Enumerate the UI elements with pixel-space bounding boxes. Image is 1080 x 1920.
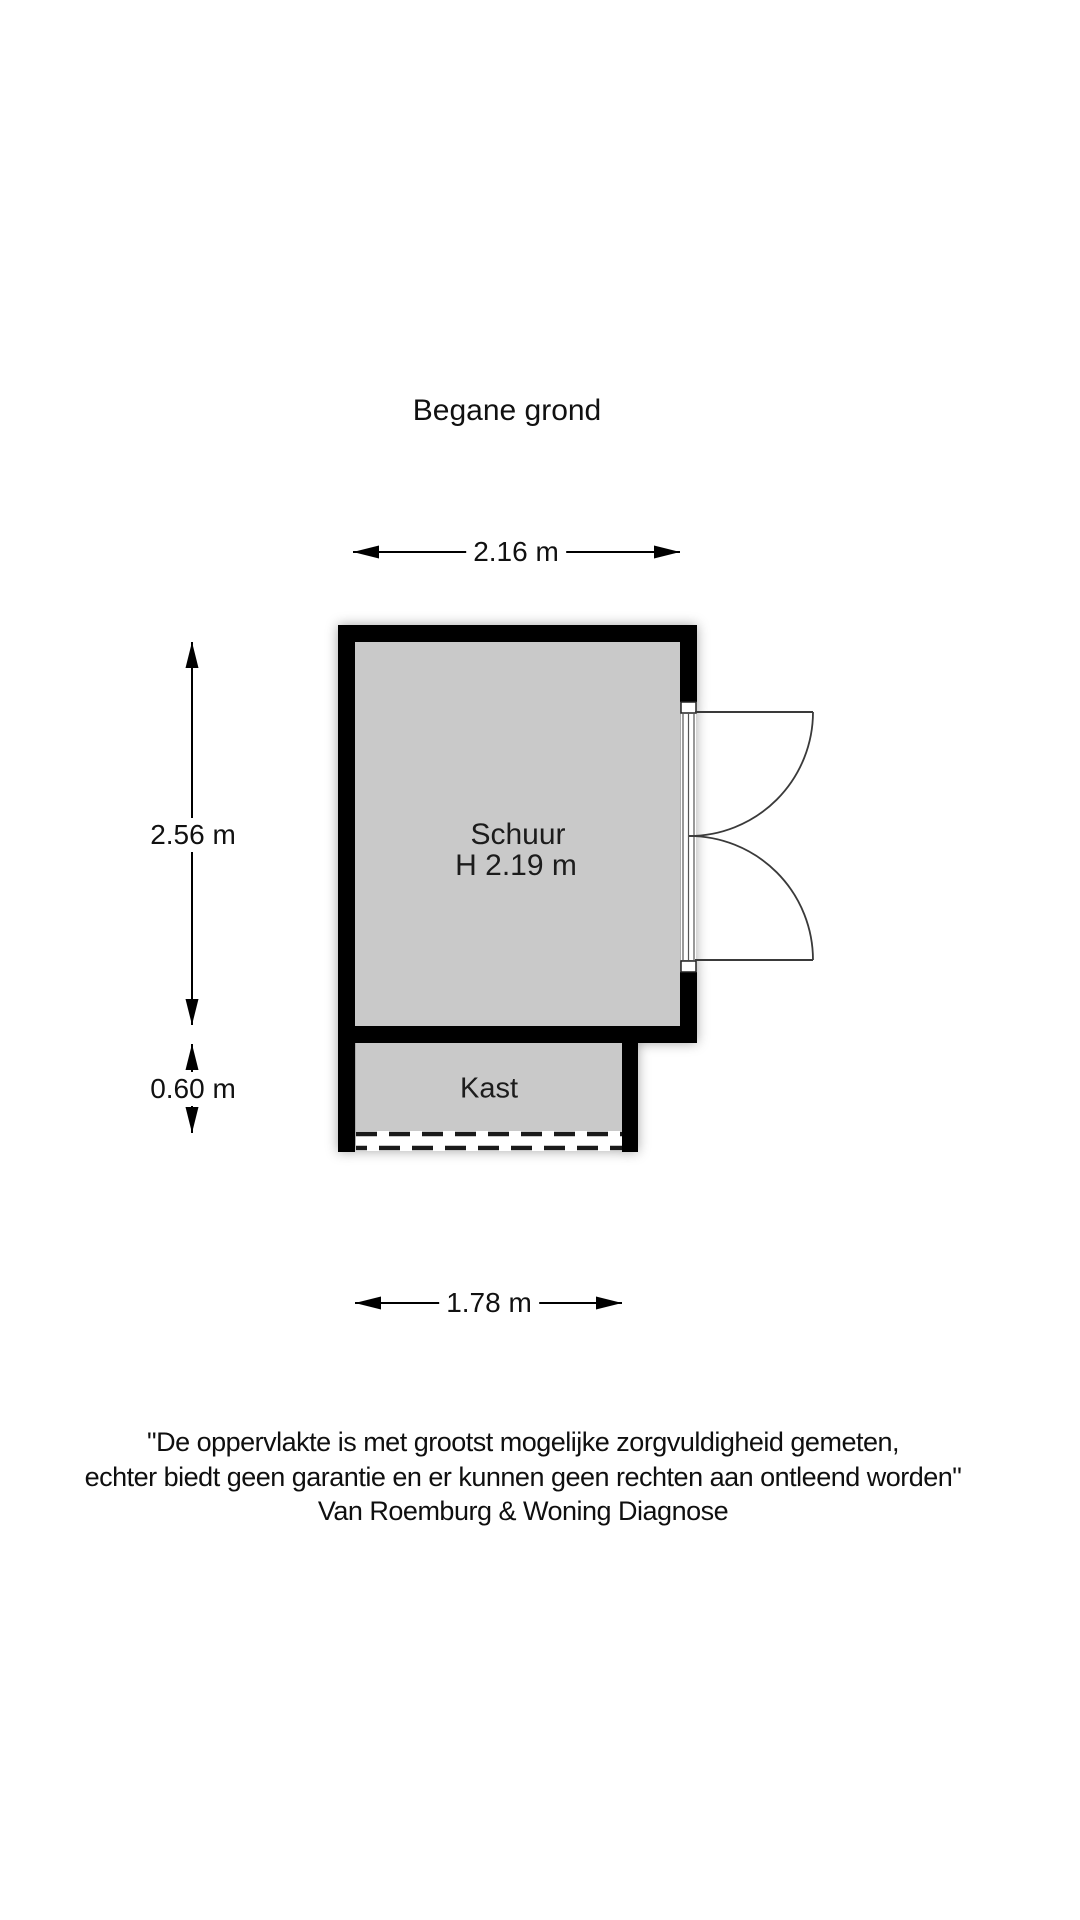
disclaimer-line-2: echter biedt geen garantie en er kunnen …: [0, 1460, 1046, 1495]
door-swing-arc-bottom: [689, 836, 813, 960]
wall-left: [338, 625, 355, 1152]
room-label-kast: Kast: [460, 1073, 518, 1106]
room-label-schuur: Schuur: [470, 818, 565, 852]
disclaimer-line-3: Van Roemburg & Woning Diagnose: [0, 1494, 1046, 1529]
door-swing-arc-top: [689, 712, 813, 836]
arrowhead-down: [186, 999, 199, 1025]
floor-title: Begane grond: [413, 394, 602, 428]
arrowhead-right: [654, 546, 680, 559]
arrowhead-right: [596, 1297, 622, 1310]
floorplan-drawing: [0, 0, 1080, 1920]
dimension-label-left-lower: 0.60 m: [143, 1072, 243, 1106]
wall-schuur-bottom: [338, 1026, 697, 1043]
floorplan-page: Begane grond 2.16 m 2.56 m 0.60 m 1.78 m…: [0, 0, 1080, 1920]
disclaimer-line-1: "De oppervlakte is met grootst mogelijke…: [0, 1425, 1046, 1460]
door-frame: [681, 702, 696, 972]
wall-right-upper-stub: [680, 625, 697, 702]
arrowhead-up: [186, 1044, 199, 1070]
door-jamb-bottom: [681, 961, 696, 972]
double-door-swing: [689, 712, 813, 960]
arrowhead-left: [353, 546, 379, 559]
arrowhead-left: [355, 1297, 381, 1310]
disclaimer-text: "De oppervlakte is met grootst mogelijke…: [0, 1425, 1046, 1529]
room-height-label-schuur: H 2.19 m: [455, 849, 577, 883]
kast-opening: [356, 1131, 622, 1151]
arrowhead-down: [186, 1107, 199, 1133]
dimension-label-left-upper: 2.56 m: [143, 818, 243, 852]
wall-top: [338, 625, 697, 642]
arrowhead-up: [186, 642, 199, 668]
dimension-label-top: 2.16 m: [466, 535, 566, 569]
dimension-label-bottom: 1.78 m: [439, 1286, 539, 1320]
wall-kast-right: [622, 1043, 638, 1152]
door-jamb-top: [681, 702, 696, 713]
